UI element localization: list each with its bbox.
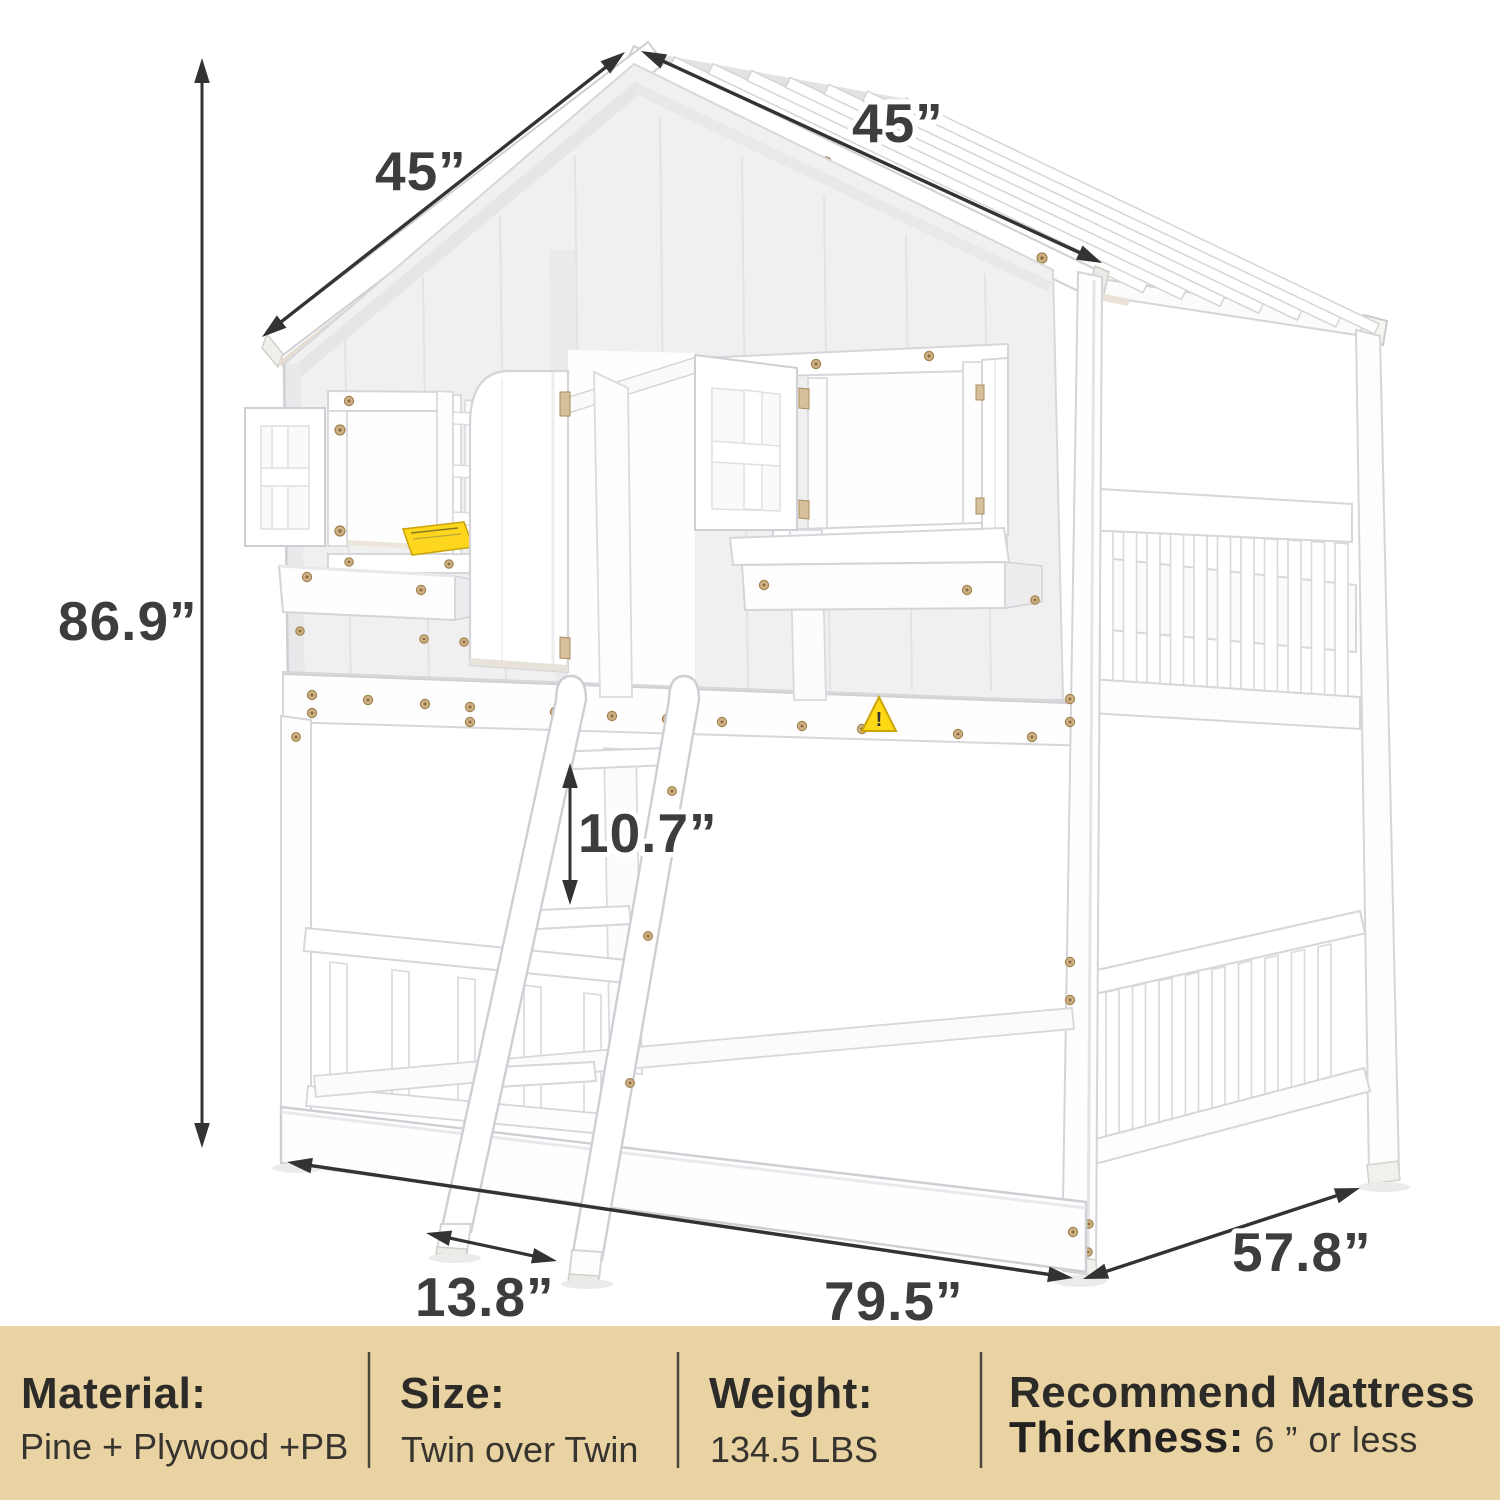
- svg-text:Size:: Size:: [400, 1369, 505, 1418]
- svg-text:45”: 45”: [852, 92, 944, 154]
- svg-text:Thickness: 6 ” or less: Thickness: 6 ” or less: [1009, 1413, 1418, 1462]
- svg-text:Recommend Mattress: Recommend Mattress: [1009, 1368, 1475, 1417]
- svg-text:Weight:: Weight:: [709, 1369, 873, 1418]
- svg-text:Pine + Plywood +PB: Pine + Plywood +PB: [20, 1426, 348, 1467]
- svg-text:!: !: [876, 709, 883, 731]
- svg-text:57.8”: 57.8”: [1232, 1221, 1372, 1283]
- svg-text:79.5”: 79.5”: [824, 1270, 964, 1332]
- svg-text:10.7”: 10.7”: [578, 802, 718, 864]
- svg-text:Twin over Twin: Twin over Twin: [401, 1429, 638, 1470]
- svg-text:Material:: Material:: [21, 1369, 206, 1418]
- svg-text:13.8”: 13.8”: [415, 1266, 555, 1328]
- svg-text:45”: 45”: [375, 140, 467, 202]
- svg-text:86.9”: 86.9”: [58, 590, 198, 652]
- svg-text:134.5 LBS: 134.5 LBS: [710, 1429, 878, 1470]
